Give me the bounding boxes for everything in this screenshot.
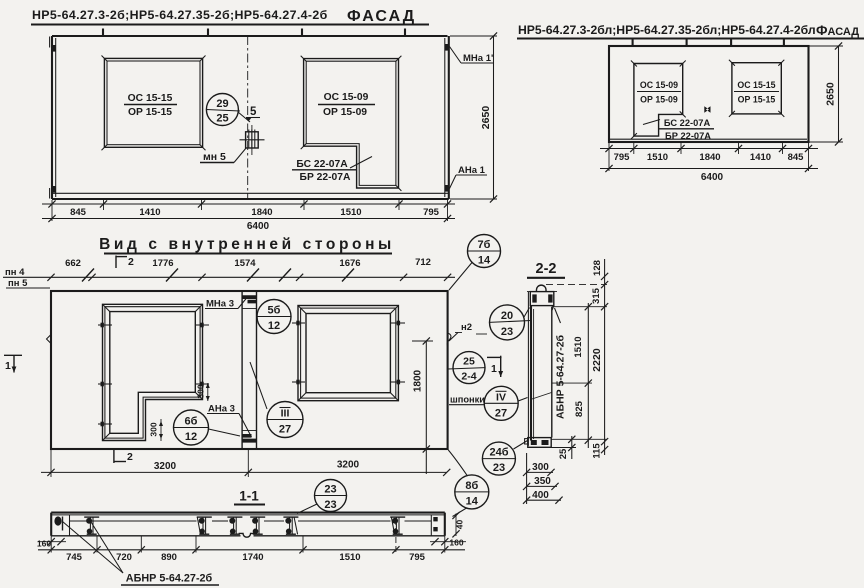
svg-text:25: 25 <box>463 356 475 368</box>
svg-text:745: 745 <box>66 552 83 563</box>
svg-text:2: 2 <box>127 451 133 463</box>
svg-text:ОР 15-09: ОР 15-09 <box>323 107 367 118</box>
svg-text:2650: 2650 <box>480 106 492 130</box>
svg-text:ФАСАД: ФАСАД <box>347 8 416 25</box>
svg-text:ОС 15-09: ОС 15-09 <box>640 80 678 90</box>
svg-text:АБНР 5-64.27-2б: АБНР 5-64.27-2б <box>126 573 213 585</box>
svg-text:3200: 3200 <box>337 460 360 471</box>
svg-text:6б: 6б <box>185 416 198 428</box>
svg-text:720: 720 <box>116 552 132 563</box>
svg-text:2: 2 <box>128 256 134 268</box>
svg-text:БС 22-07А: БС 22-07А <box>296 159 348 170</box>
svg-text:6400: 6400 <box>701 172 724 183</box>
svg-text:795: 795 <box>409 552 426 563</box>
svg-text:662: 662 <box>65 258 81 269</box>
svg-text:МНа 1': МНа 1' <box>463 53 493 64</box>
svg-text:1410: 1410 <box>750 152 771 163</box>
svg-text:12: 12 <box>185 431 197 443</box>
svg-text:пн 5: пн 5 <box>8 278 28 289</box>
svg-text:3200: 3200 <box>154 461 177 472</box>
svg-text:ОС 15-09: ОС 15-09 <box>324 92 369 103</box>
svg-text:29: 29 <box>216 98 228 110</box>
svg-text:НР5-64.27.3-2бл;НР5-64.27.35-2: НР5-64.27.3-2бл;НР5-64.27.35-2бл;НР5-64.… <box>518 23 816 37</box>
svg-text:7б: 7б <box>478 239 491 251</box>
svg-text:1410: 1410 <box>139 207 160 218</box>
svg-text:ОР 15-15: ОР 15-15 <box>128 107 172 118</box>
svg-text:1510: 1510 <box>647 152 668 163</box>
svg-text:АНа 3: АНа 3 <box>208 404 235 415</box>
svg-text:БР 22-07А: БР 22-07А <box>300 172 351 183</box>
svg-text:ОР 15-15: ОР 15-15 <box>738 95 776 105</box>
svg-text:1676: 1676 <box>339 258 360 269</box>
svg-text:2-2: 2-2 <box>536 261 557 277</box>
svg-text:5б: 5б <box>268 305 281 317</box>
svg-text:795: 795 <box>614 152 631 163</box>
svg-text:14: 14 <box>478 255 491 267</box>
svg-text:128: 128 <box>592 260 603 276</box>
svg-text:300: 300 <box>149 422 159 436</box>
svg-text:ОС 15-15: ОС 15-15 <box>128 93 173 104</box>
svg-text:ОС 15-15: ОС 15-15 <box>737 80 775 90</box>
svg-text:2650: 2650 <box>825 82 837 106</box>
svg-text:845: 845 <box>70 207 87 218</box>
svg-text:1510: 1510 <box>339 552 360 563</box>
svg-text:1574: 1574 <box>234 258 256 269</box>
svg-text:350: 350 <box>534 476 551 487</box>
svg-text:8б: 8б <box>465 480 478 492</box>
svg-text:300: 300 <box>532 462 549 473</box>
svg-text:825: 825 <box>574 400 585 417</box>
svg-text:20: 20 <box>501 310 513 322</box>
svg-text:160: 160 <box>37 539 51 549</box>
svg-text:Вид с внутренней стороны: Вид с внутренней стороны <box>99 236 395 253</box>
svg-text:шпонки: шпонки <box>450 395 485 405</box>
svg-text:160: 160 <box>449 538 463 548</box>
svg-text:н2: н2 <box>461 322 472 333</box>
svg-text:315: 315 <box>591 287 602 304</box>
svg-text:НР5-64.27.3-2б;НР5-64.27.35-2б: НР5-64.27.3-2б;НР5-64.27.35-2б;НР5-64.27… <box>32 8 328 22</box>
svg-text:1840: 1840 <box>251 207 272 218</box>
svg-text:1800: 1800 <box>413 369 424 392</box>
svg-text:14: 14 <box>466 495 479 507</box>
svg-text:5: 5 <box>250 106 257 118</box>
svg-text:2-4: 2-4 <box>461 371 476 383</box>
svg-text:АНа 1: АНа 1 <box>458 165 486 176</box>
svg-text:6400: 6400 <box>247 221 270 232</box>
svg-text:1: 1 <box>5 360 11 372</box>
svg-text:795: 795 <box>423 207 440 218</box>
svg-text:1: 1 <box>491 363 497 375</box>
svg-text:300: 300 <box>196 384 206 398</box>
svg-text:115: 115 <box>592 443 603 459</box>
svg-text:23: 23 <box>324 499 336 511</box>
svg-text:IV: IV <box>496 391 506 403</box>
svg-text:25: 25 <box>558 448 569 459</box>
svg-text:1510: 1510 <box>573 336 584 357</box>
svg-text:МНа 3: МНа 3 <box>206 299 234 310</box>
svg-text:БР 22-07А: БР 22-07А <box>665 131 711 141</box>
svg-text:III: III <box>281 408 290 420</box>
svg-text:23: 23 <box>501 326 513 338</box>
svg-text:БС 22-07А: БС 22-07А <box>664 118 711 128</box>
svg-text:1840: 1840 <box>699 152 720 163</box>
svg-text:25: 25 <box>216 113 228 125</box>
svg-text:845: 845 <box>788 152 805 163</box>
svg-text:12: 12 <box>268 320 280 332</box>
svg-text:27: 27 <box>495 407 507 419</box>
svg-text:40: 40 <box>455 520 465 530</box>
svg-text:ОР 15-09: ОР 15-09 <box>640 95 678 105</box>
svg-text:1776: 1776 <box>152 258 173 269</box>
svg-text:400: 400 <box>532 490 549 501</box>
svg-text:1510: 1510 <box>340 207 361 218</box>
svg-text:пн 4: пн 4 <box>5 267 25 278</box>
svg-text:ФАСАД: ФАСАД <box>816 23 859 38</box>
svg-text:мн 5: мн 5 <box>203 151 226 163</box>
svg-text:712: 712 <box>415 257 431 268</box>
svg-text:23: 23 <box>493 462 505 474</box>
svg-text:23: 23 <box>324 484 336 496</box>
svg-text:1-1: 1-1 <box>239 489 259 504</box>
svg-text:24б: 24б <box>489 447 508 459</box>
svg-text:1740: 1740 <box>242 552 263 563</box>
svg-text:2220: 2220 <box>591 348 603 372</box>
svg-text:АБНР 5-64.27-2б: АБНР 5-64.27-2б <box>555 334 567 419</box>
svg-text:27: 27 <box>279 424 291 436</box>
svg-text:890: 890 <box>161 552 177 563</box>
